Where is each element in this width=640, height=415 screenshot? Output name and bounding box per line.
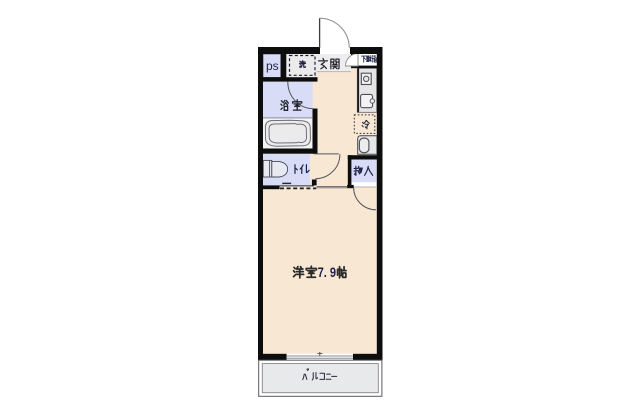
svg-text:7. 9: 7. 9 [318,265,337,280]
svg-text:ps: ps [266,59,279,73]
